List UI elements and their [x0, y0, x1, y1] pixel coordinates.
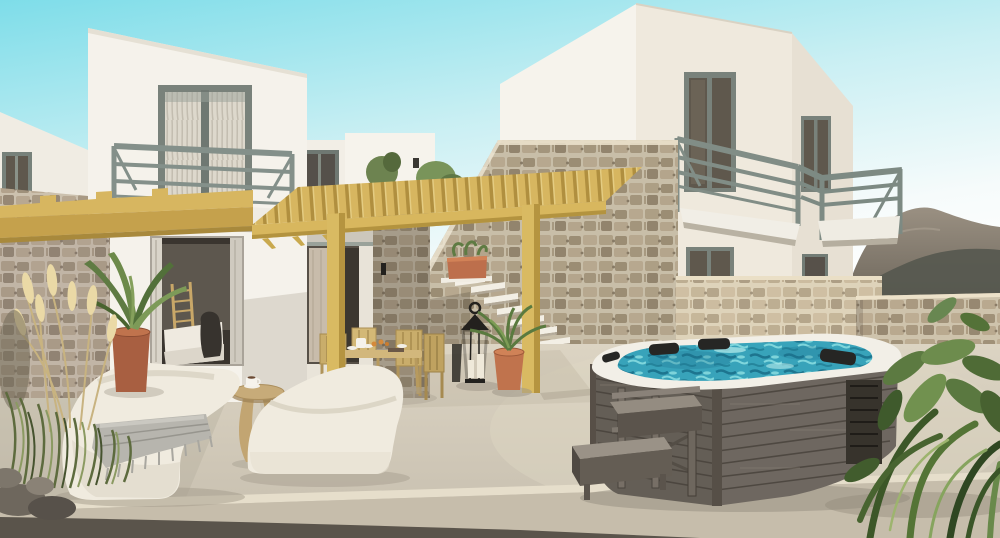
teapot [356, 338, 366, 348]
candle [477, 354, 484, 378]
hot-tub-corner-stile [712, 386, 722, 506]
right-villa-window-2 [801, 116, 831, 192]
terracotta-pot-left [112, 332, 150, 392]
candle [468, 360, 474, 378]
scene-svg [0, 0, 1000, 538]
wall-lamp [381, 263, 386, 275]
door-curtain-right [230, 238, 242, 364]
door-interior-bag [200, 312, 221, 358]
villa-rendering [0, 0, 1000, 538]
